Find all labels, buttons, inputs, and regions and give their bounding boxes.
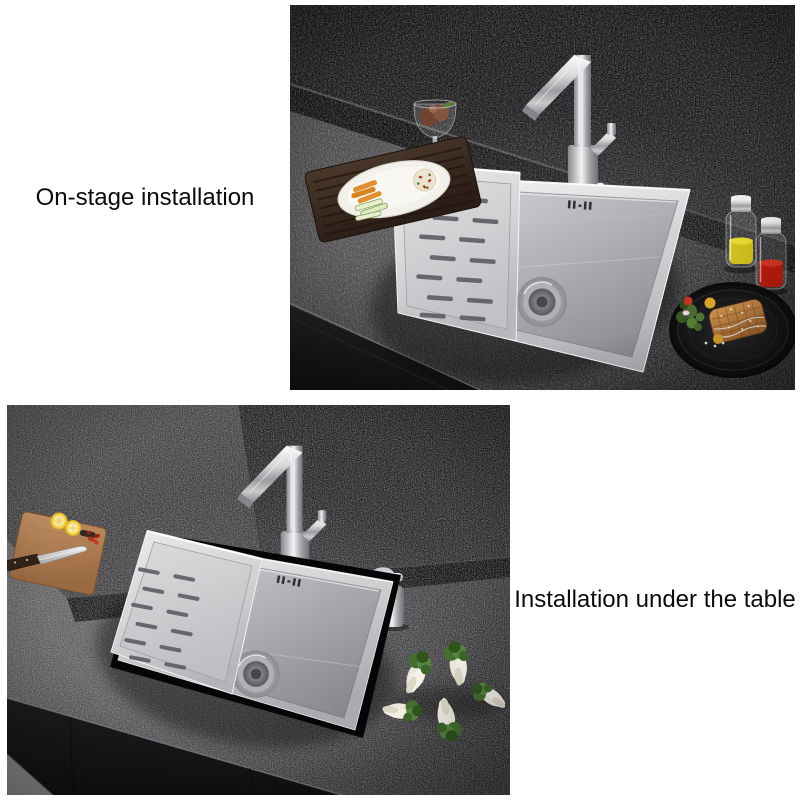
caption-under-table: Installation under the table <box>510 405 800 795</box>
photo-under-mount <box>7 405 510 795</box>
caption-on-stage-text: On-stage installation <box>36 184 255 212</box>
product-collage: On-stage installation <box>0 0 800 800</box>
vignette <box>290 5 795 390</box>
vignette <box>7 405 510 795</box>
caption-under-table-text: Installation under the table <box>514 586 796 614</box>
caption-on-stage: On-stage installation <box>0 5 290 390</box>
photo-under-mount-illustration <box>7 405 510 795</box>
photo-top-mount <box>290 5 795 390</box>
photo-top-mount-illustration <box>290 5 795 390</box>
